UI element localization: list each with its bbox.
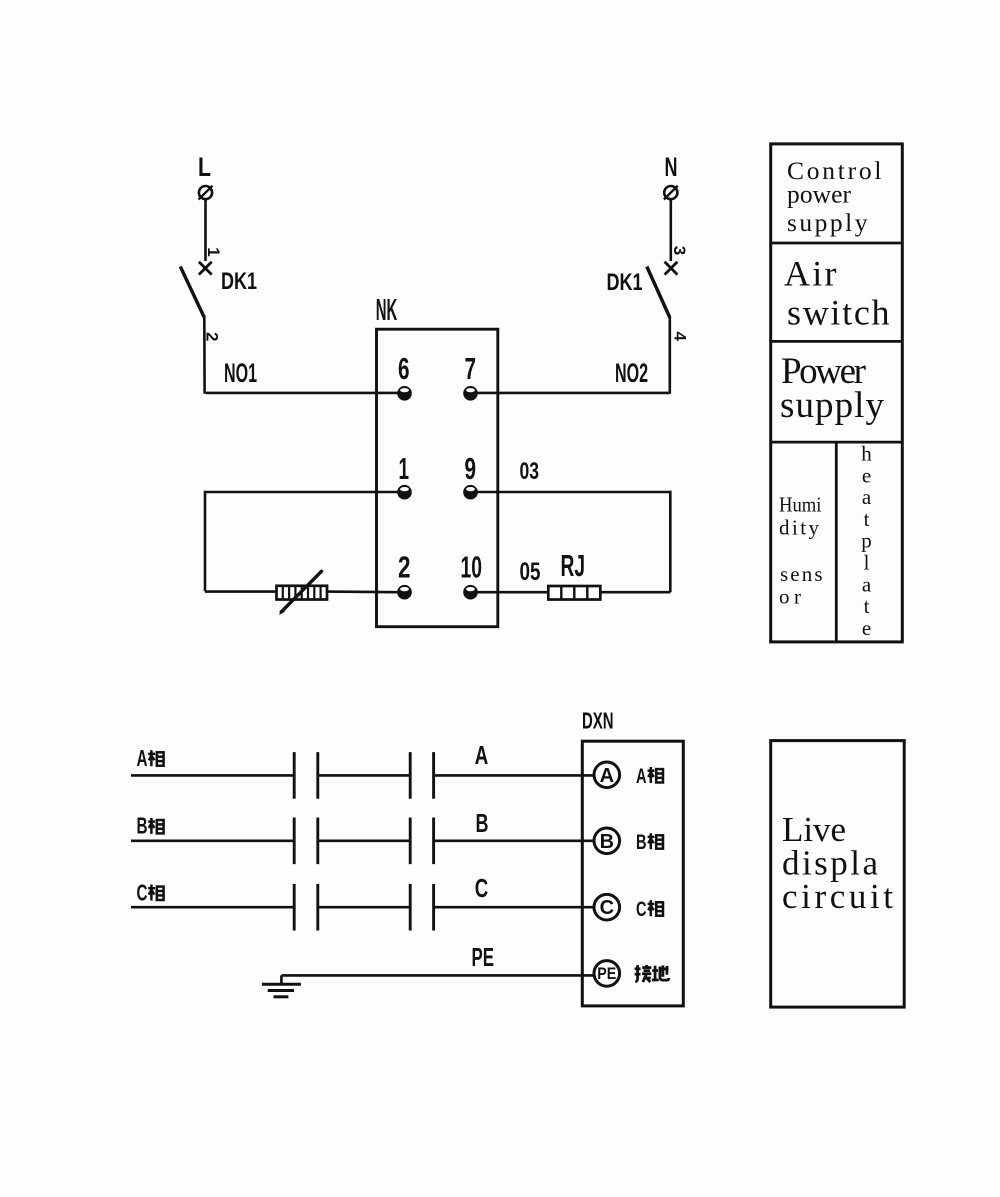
svg-text:supply: supply — [780, 385, 885, 426]
svg-text:supply: supply — [787, 208, 868, 237]
svg-text:l: l — [864, 551, 870, 575]
svg-text:or: or — [779, 585, 801, 609]
svg-text:e: e — [862, 463, 871, 487]
svg-text:Air: Air — [784, 254, 837, 294]
svg-text:03: 03 — [520, 458, 540, 485]
svg-text:4: 4 — [671, 332, 690, 342]
svg-text:DXN: DXN — [582, 708, 614, 734]
svg-text:C: C — [475, 873, 489, 903]
svg-text:circuit: circuit — [782, 877, 893, 916]
svg-text:B: B — [636, 831, 647, 854]
svg-text:sens: sens — [780, 562, 823, 586]
svg-text:B: B — [137, 813, 148, 839]
svg-text:1: 1 — [204, 247, 223, 256]
svg-text:PE: PE — [597, 964, 616, 983]
svg-text:1: 1 — [399, 451, 410, 486]
svg-text:N: N — [665, 152, 678, 182]
svg-text:6: 6 — [398, 351, 410, 386]
svg-text:A: A — [475, 740, 489, 770]
svg-text:3: 3 — [670, 246, 689, 255]
svg-text:C: C — [636, 898, 647, 921]
svg-text:DK1: DK1 — [607, 269, 643, 296]
svg-text:2: 2 — [203, 332, 222, 341]
svg-text:power: power — [787, 180, 852, 209]
svg-text:RJ: RJ — [561, 548, 586, 583]
svg-text:NK: NK — [376, 292, 398, 327]
svg-text:t: t — [864, 507, 870, 531]
svg-text:L: L — [198, 152, 211, 182]
svg-text:C: C — [600, 897, 614, 919]
svg-text:2: 2 — [398, 550, 411, 585]
svg-text:NO2: NO2 — [615, 358, 648, 388]
svg-text:h: h — [861, 442, 872, 466]
svg-text:A: A — [636, 765, 647, 788]
svg-text:dity: dity — [779, 516, 820, 540]
svg-text:DK1: DK1 — [221, 268, 257, 295]
svg-text:t: t — [864, 594, 870, 618]
svg-text:PE: PE — [472, 942, 495, 972]
svg-text:10: 10 — [461, 550, 483, 585]
svg-text:B: B — [600, 831, 614, 853]
svg-text:A: A — [137, 745, 148, 771]
svg-text:NO1: NO1 — [224, 358, 257, 388]
svg-text:a: a — [862, 485, 872, 509]
svg-text:switch: switch — [787, 293, 890, 333]
svg-text:p: p — [861, 529, 872, 553]
svg-text:Humi: Humi — [779, 493, 822, 517]
svg-text:A: A — [600, 765, 614, 787]
svg-text:C: C — [137, 879, 148, 905]
svg-text:B: B — [476, 808, 489, 838]
svg-text:9: 9 — [465, 451, 477, 486]
svg-text:7: 7 — [465, 351, 477, 386]
svg-text:a: a — [862, 572, 872, 596]
svg-text:05: 05 — [520, 558, 541, 586]
svg-text:e: e — [862, 616, 871, 640]
